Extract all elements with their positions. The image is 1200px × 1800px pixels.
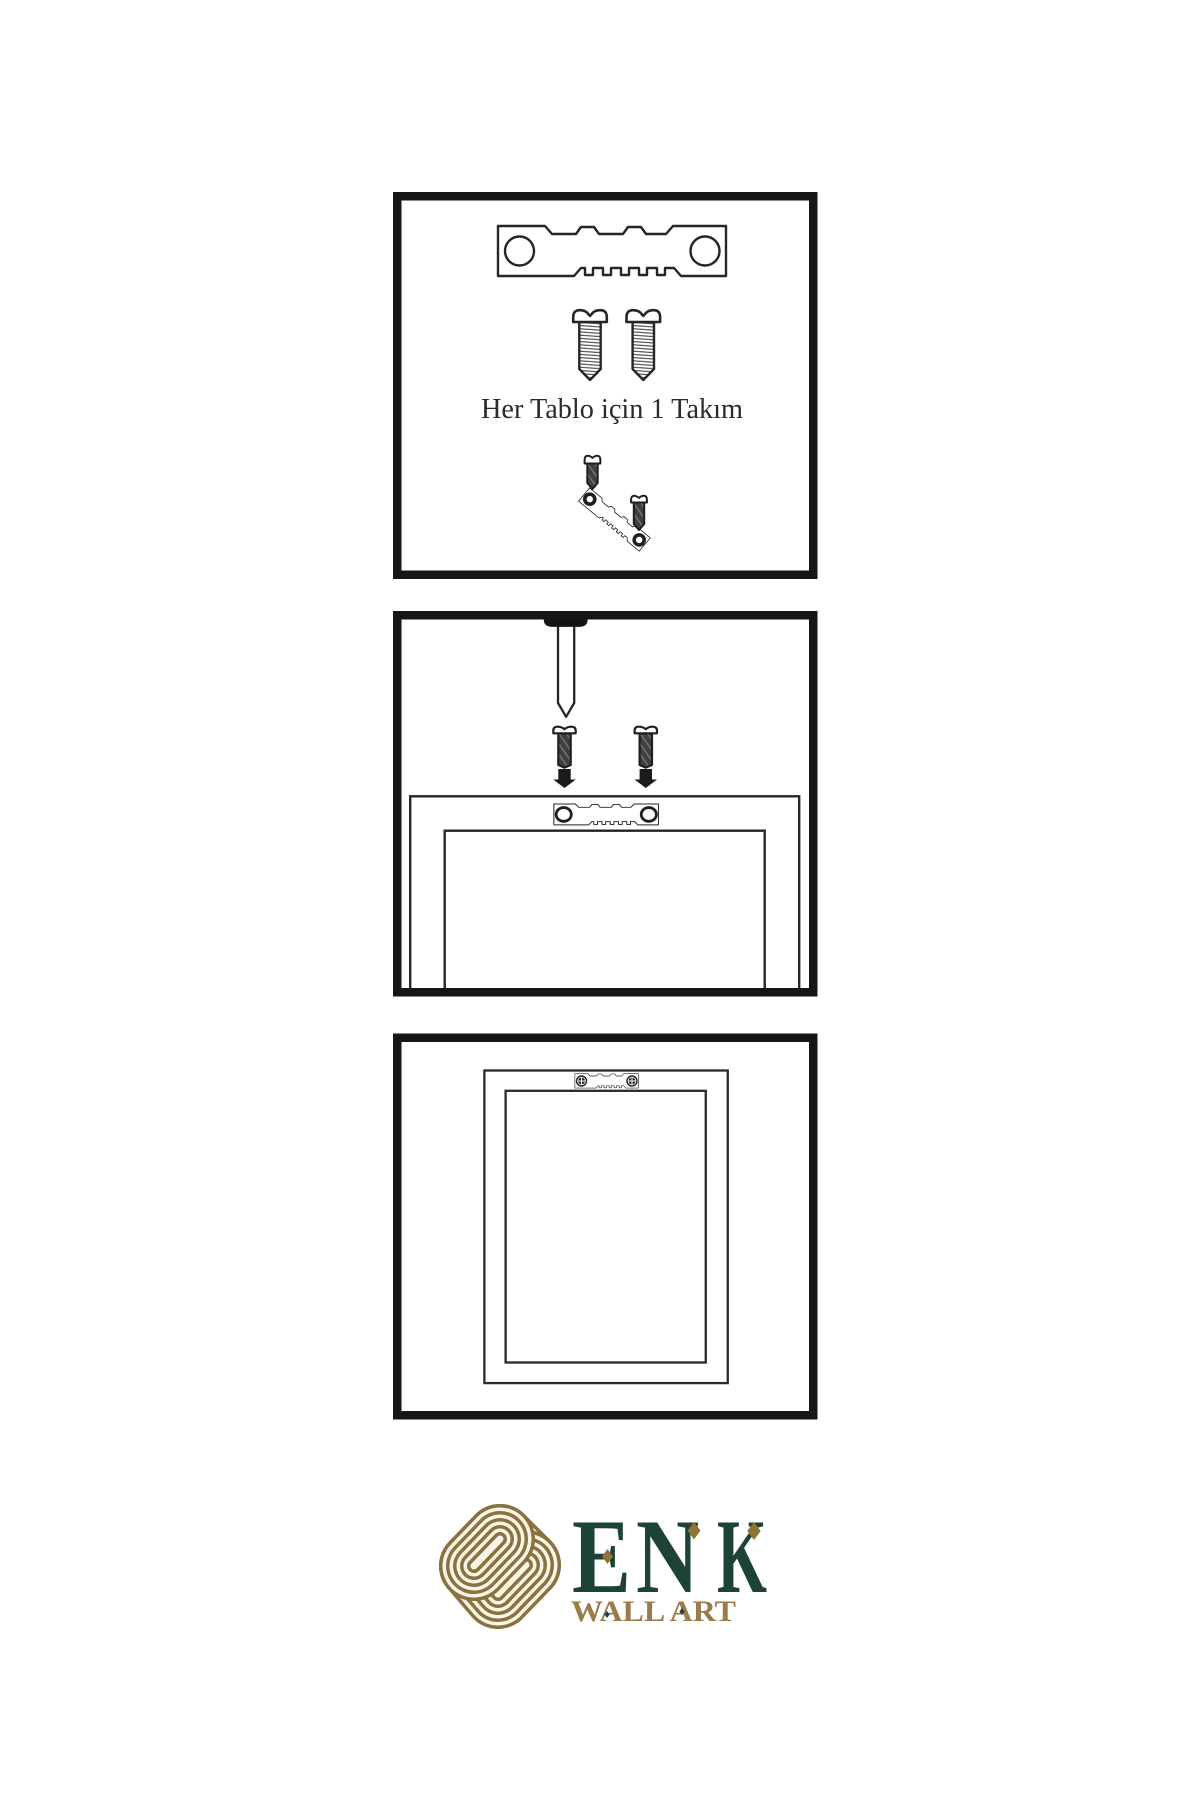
svg-text:WALL ART: WALL ART — [571, 1595, 736, 1628]
svg-text:Her Tablo için 1 Takım: Her Tablo için 1 Takım — [481, 393, 743, 425]
